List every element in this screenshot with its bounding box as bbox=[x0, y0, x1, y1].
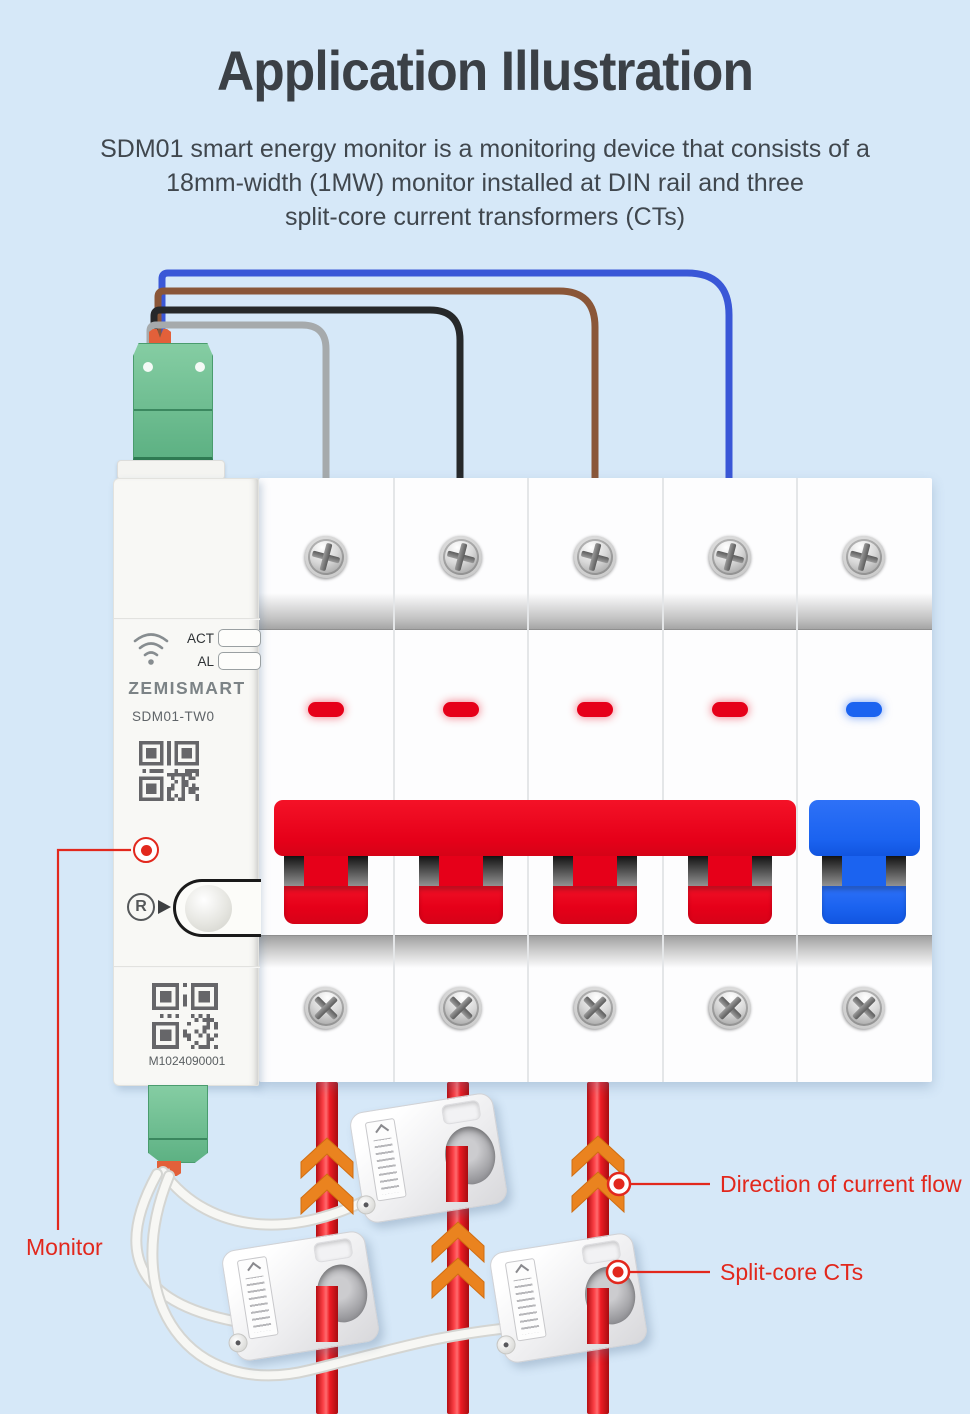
ct-wire-nub bbox=[355, 1194, 377, 1216]
page-title: Application Illustration bbox=[39, 38, 931, 103]
ct-slot bbox=[313, 1237, 354, 1263]
screw-icon bbox=[300, 531, 351, 582]
panel-column-divider bbox=[662, 478, 664, 1082]
direction-label: Direction of current flow bbox=[720, 1171, 962, 1198]
case-seam bbox=[114, 966, 260, 968]
panel-column-divider bbox=[527, 478, 529, 1082]
breaker-handle-red bbox=[284, 886, 368, 924]
application-illustration-page: Application Illustration SDM01 smart ene… bbox=[0, 0, 970, 1414]
breaker-handle-bar-red bbox=[274, 800, 796, 856]
ct-wire-nub bbox=[495, 1334, 517, 1356]
ct-cable-segment bbox=[316, 1286, 338, 1342]
screw-icon bbox=[700, 978, 759, 1037]
panel-column-divider bbox=[393, 478, 395, 1082]
ct-label-sticker bbox=[365, 1118, 407, 1202]
reset-button bbox=[173, 879, 261, 937]
breaker-indicator-red bbox=[443, 702, 479, 717]
energy-monitor: ACT AL ZEMISMART SDM01-TW0 R M1024090001 bbox=[113, 478, 259, 1086]
terminal-block-bottom bbox=[148, 1085, 208, 1163]
direction-callout-dot bbox=[608, 1173, 630, 1195]
led-window-al bbox=[218, 652, 261, 670]
wire-blue bbox=[162, 273, 729, 482]
ct-wire-nub bbox=[227, 1332, 249, 1354]
monitor-callout-dot bbox=[133, 837, 159, 863]
page-description: SDM01 smart energy monitor is a monitori… bbox=[0, 132, 970, 234]
breaker-indicator-blue bbox=[846, 702, 882, 717]
screw-icon bbox=[435, 531, 486, 582]
split-core-ct bbox=[220, 1229, 381, 1362]
breaker-indicator-red bbox=[712, 702, 748, 717]
breaker-handle-blue bbox=[809, 800, 920, 856]
description-line: 18mm-width (1MW) monitor installed at DI… bbox=[0, 166, 970, 200]
qr-code bbox=[152, 981, 218, 1051]
breaker-handle-blue bbox=[822, 855, 906, 887]
case-seam bbox=[114, 618, 260, 620]
direction-callout-dot bbox=[614, 1179, 625, 1190]
terminal-connector-bottom bbox=[157, 1161, 181, 1176]
screw-icon bbox=[565, 978, 624, 1037]
wire-brown bbox=[158, 291, 595, 482]
split-core-ct bbox=[348, 1091, 509, 1224]
din-rail-top-edge bbox=[259, 593, 932, 630]
ct-cable-segment bbox=[587, 1288, 609, 1344]
description-line: split-core current transformers (CTs) bbox=[0, 200, 970, 234]
ct-lead bbox=[163, 1172, 388, 1225]
ct-slot bbox=[441, 1099, 482, 1125]
ct-label-text bbox=[374, 1138, 400, 1195]
reset-knob bbox=[185, 885, 232, 932]
terminal-dot bbox=[143, 362, 153, 372]
ct-cable-segment bbox=[446, 1146, 468, 1202]
model-number: SDM01-TW0 bbox=[132, 709, 215, 724]
brand-logo: ZEMISMART bbox=[124, 678, 250, 699]
breaker-handle-red bbox=[553, 886, 637, 924]
split-core-ct bbox=[488, 1231, 649, 1364]
split-core-label: Split-core CTs bbox=[720, 1259, 863, 1286]
ct-label-sticker bbox=[237, 1256, 279, 1340]
breaker-handle-red bbox=[284, 855, 368, 887]
screw-icon bbox=[431, 978, 490, 1037]
terminal-dot bbox=[195, 362, 205, 372]
screw-icon bbox=[296, 978, 355, 1037]
terminal-seam bbox=[149, 1138, 207, 1140]
breaker-handle-red bbox=[419, 886, 503, 924]
breaker-panel bbox=[259, 478, 932, 1082]
panel-column-divider bbox=[796, 478, 798, 1082]
breaker-handle-red bbox=[688, 886, 772, 924]
led-label-act: ACT bbox=[114, 631, 214, 646]
monitor-label: Monitor bbox=[26, 1234, 103, 1261]
monitor-top-cap bbox=[117, 460, 225, 480]
breaker-handle-red bbox=[553, 855, 637, 887]
screw-icon bbox=[834, 978, 893, 1037]
terminal-seam bbox=[134, 409, 212, 411]
qr-code bbox=[138, 741, 200, 801]
breaker-indicator-red bbox=[577, 702, 613, 717]
ct-slot bbox=[581, 1239, 622, 1265]
breaker-handle-red bbox=[419, 855, 503, 887]
breaker-handle-blue bbox=[822, 886, 906, 924]
screw-icon bbox=[838, 531, 889, 582]
ct-label-text bbox=[246, 1276, 272, 1333]
description-line: SDM01 smart energy monitor is a monitori… bbox=[0, 132, 970, 166]
screw-icon bbox=[704, 531, 755, 582]
reset-arrow-icon bbox=[158, 900, 171, 914]
terminal-block-top bbox=[133, 343, 213, 460]
reset-symbol: R bbox=[127, 893, 155, 921]
serial-number: M1024090001 bbox=[114, 1054, 260, 1068]
breaker-handle-red bbox=[688, 855, 772, 887]
din-rail-bottom-edge bbox=[259, 935, 932, 968]
led-label-al: AL bbox=[114, 654, 214, 669]
screw-icon bbox=[569, 531, 620, 582]
terminal-connector-top bbox=[149, 329, 171, 345]
breaker-indicator-red bbox=[308, 702, 344, 717]
ct-label-sticker bbox=[505, 1258, 547, 1342]
led-window-act bbox=[218, 629, 261, 647]
ct-label-text bbox=[514, 1278, 540, 1335]
ct-lead bbox=[163, 1172, 388, 1225]
